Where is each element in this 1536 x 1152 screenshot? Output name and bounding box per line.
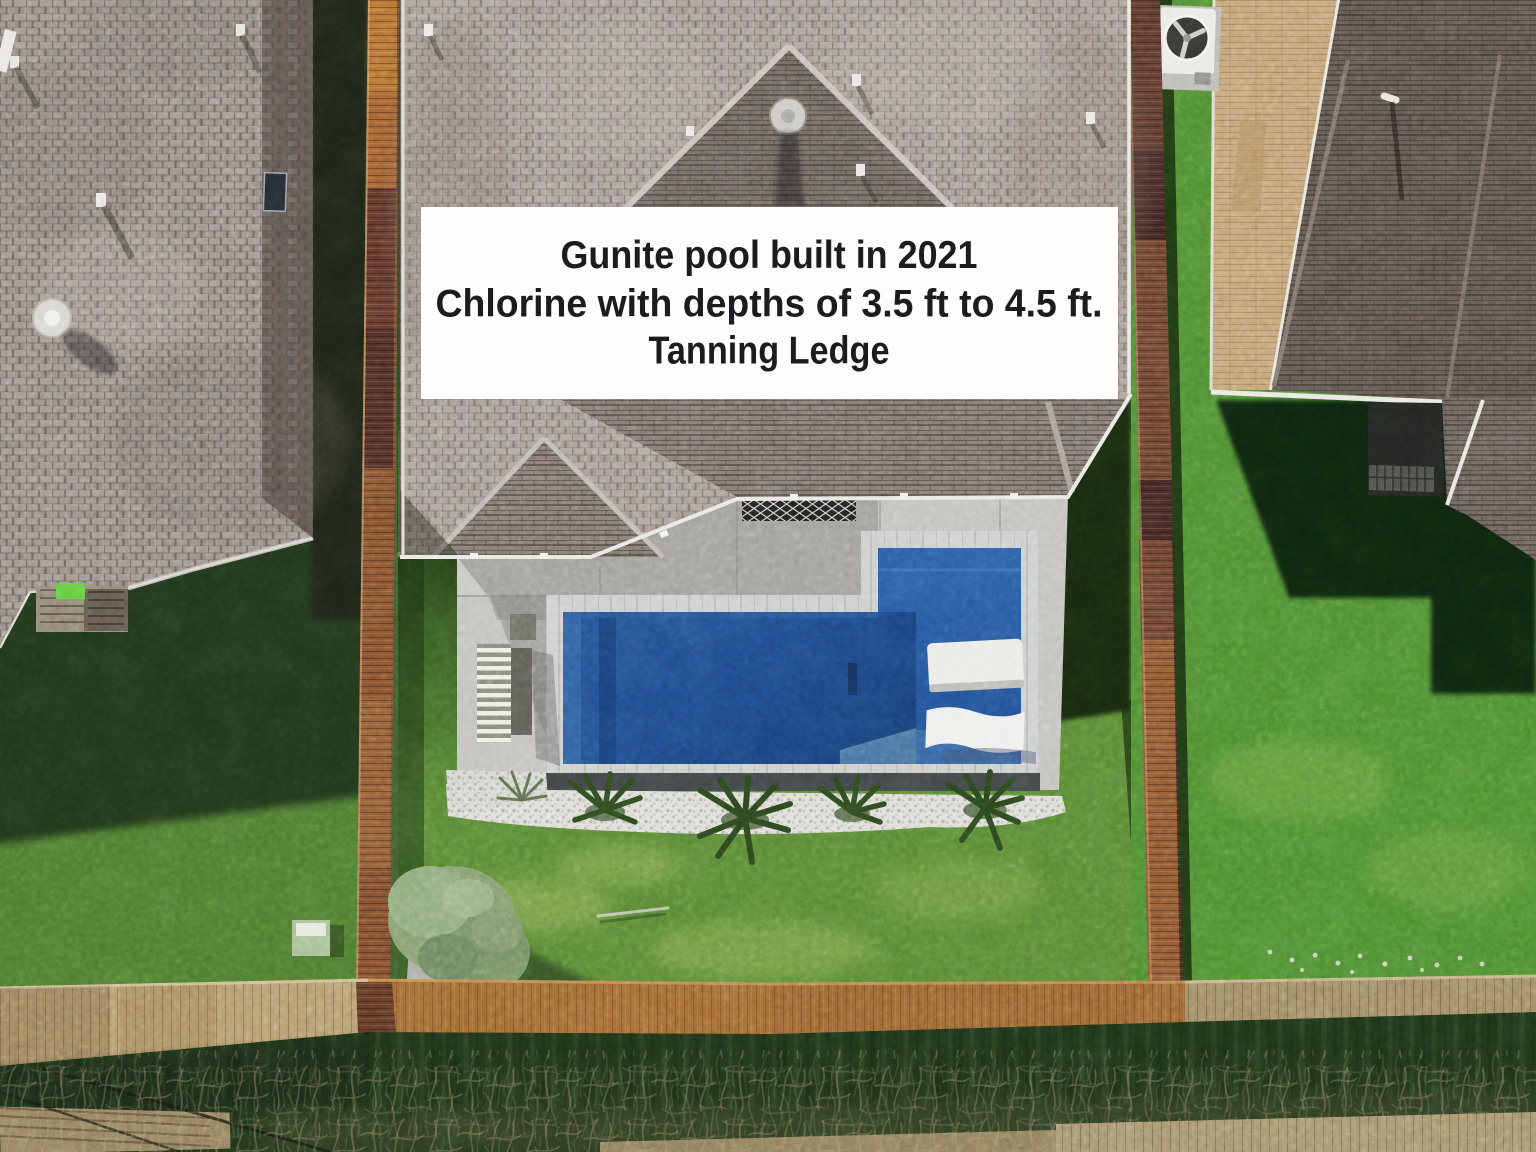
svg-text:Chlorine with depths of 3.5 ft: Chlorine with depths of 3.5 ft to 4.5 ft… <box>436 283 1103 326</box>
svg-text:Gunite pool built in 2021: Gunite pool built in 2021 <box>561 234 978 277</box>
svg-text:Tanning Ledge: Tanning Ledge <box>649 330 890 373</box>
